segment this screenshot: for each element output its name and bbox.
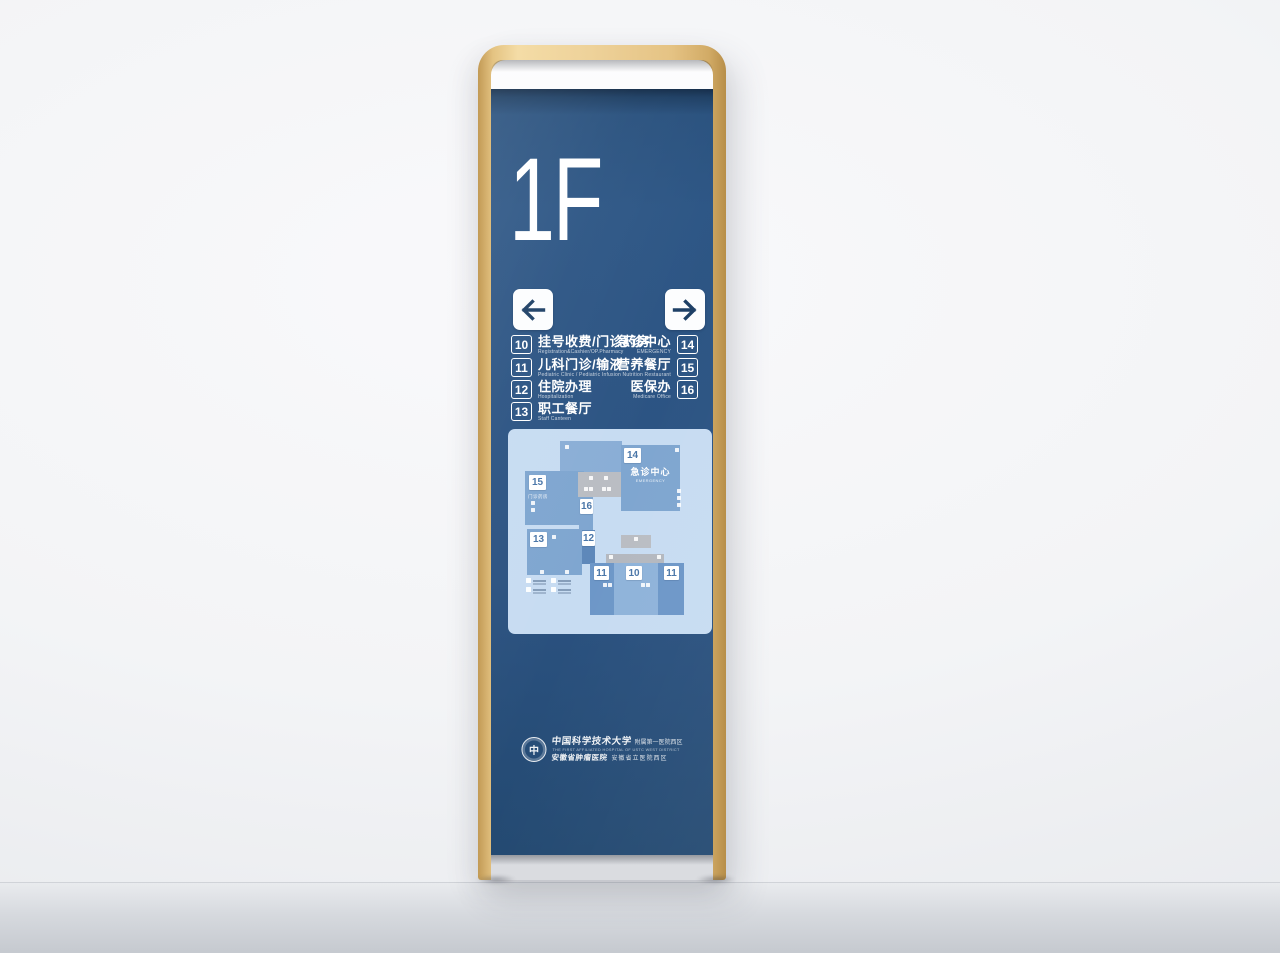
hospital-subname-cn: 安徽省肿瘤医院 [551,754,608,763]
location-name-en: Pediatric Clinic / Pediatric Infusion [538,372,623,379]
legend-icon [551,578,556,583]
pictogram-icon [609,555,613,559]
pictogram-icon [657,555,661,559]
legend-text-bar [558,580,571,582]
left-arrow-button [513,289,553,330]
location-name-cn: 儿科门诊/输液 [538,358,623,372]
hospital-logo: 中 中国科学技术大学 附属第一医院西区 THE FIRST AFFILIATED… [521,737,682,763]
location-name-en: Staff Canteen [538,416,592,423]
location-number: 13 [511,402,532,421]
scene: 1F 10 挂号收费/门诊药房Registration&Cashier/OP.P… [0,0,1280,953]
location-number: 12 [511,380,532,399]
location-name-en: Nutrition Restaurant [623,372,671,379]
pictogram-icon [604,476,608,480]
left-arrow-icon [519,296,547,324]
map-number-11a: 11 [594,566,609,580]
map-number-13: 13 [530,532,547,547]
pictogram-icon [677,503,681,507]
pictogram-icon [677,489,681,493]
pictogram-icon [602,487,606,491]
floor-label: 1F [509,141,601,259]
pictogram-icon [677,496,681,500]
pictogram-icon [542,476,546,480]
legend-item [526,578,546,583]
location-number: 10 [511,335,532,354]
map-elevator-bank [578,472,623,497]
legend-item [526,587,546,592]
location-name-cn: 住院办理 [538,380,592,394]
location-number: 15 [677,358,698,377]
legend-icon [551,587,556,592]
location-name-cn: 医保办 [630,380,671,394]
legend-text-bar [533,589,546,591]
location-name-en: Hospitalization [538,394,592,401]
pictogram-icon [531,508,535,512]
location-number: 14 [677,335,698,354]
location-number: 16 [677,380,698,399]
location-name-cn: 职工餐厅 [538,402,592,416]
location-name-cn: 营养餐厅 [617,358,671,372]
legend-item [551,578,571,583]
legend-text-bar [533,580,546,582]
legend-icon [526,578,531,583]
pictogram-icon [565,570,569,574]
pictogram-icon [584,487,588,491]
floor-surface [0,882,1280,953]
legend-text-bar [558,589,571,591]
pictogram-icon [565,445,569,449]
hospital-emblem-icon: 中 [521,737,546,762]
map-number-14: 14 [624,448,641,463]
map-emergency-label: 急诊中心 EMERGENCY [621,467,680,484]
hospital-name-cn: 中国科学技术大学 [551,737,632,748]
directory-row: 12 住院办理Hospitalization [511,380,592,401]
location-number: 11 [511,358,532,377]
legend-item [551,587,571,592]
sign-panel: 1F 10 挂号收费/门诊药房Registration&Cashier/OP.P… [491,89,713,855]
pictogram-icon [646,583,650,587]
location-name-en: Medicare Office [633,394,671,401]
pictogram-icon [607,487,611,491]
pictogram-icon [589,476,593,480]
pictogram-icon [540,570,544,574]
directory-row: 13 职工餐厅Staff Canteen [511,402,592,423]
pictogram-icon [634,537,638,541]
leg-shadow-right [696,875,736,884]
pictogram-icon [608,583,612,587]
legend-icon [526,587,531,592]
pictogram-icon [589,487,593,491]
location-name-en: EMERGENCY [637,349,671,356]
map-number-16: 16 [580,499,593,514]
map-number-12: 12 [582,531,595,546]
map-legend [526,578,571,592]
directory-row: 11 儿科门诊/输液Pediatric Clinic / Pediatric I… [511,358,623,379]
pictogram-icon [531,501,535,505]
panel-bottom-shadow [491,855,713,865]
right-arrow-icon [671,296,699,324]
hospital-name-cn-suffix: 附属第一医院西区 [635,740,683,747]
pictogram-icon [603,583,607,587]
directory-row: 14 急诊中心EMERGENCY [617,335,698,356]
sign-totem: 1F 10 挂号收费/门诊药房Registration&Cashier/OP.P… [478,45,726,880]
map-room15-caption: 门诊药房 [528,494,548,500]
hospital-name-block: 中国科学技术大学 附属第一医院西区 THE FIRST AFFILIATED H… [551,737,682,763]
map-block [560,441,622,473]
map-number-11b: 11 [664,566,679,580]
emblem-glyph: 中 [529,742,539,757]
map-number-10: 10 [626,566,642,580]
location-name-cn: 急诊中心 [617,335,671,349]
map-emergency-en: EMERGENCY [621,478,680,484]
pictogram-icon [641,583,645,587]
map-emergency-cn: 急诊中心 [621,467,680,478]
pictogram-icon [675,448,679,452]
directory-row: 15 营养餐厅Nutrition Restaurant [617,358,698,379]
hospital-subname-cn-suffix: 安徽省立医院西区 [611,756,667,763]
leg-shadow-left [476,875,516,884]
directory-row: 16 医保办Medicare Office [630,380,698,401]
right-arrow-button [665,289,705,330]
floor-map: 14 15 16 13 12 11 10 11 急诊中心 EMERGENCY 门… [508,429,712,634]
pictogram-icon [552,535,556,539]
